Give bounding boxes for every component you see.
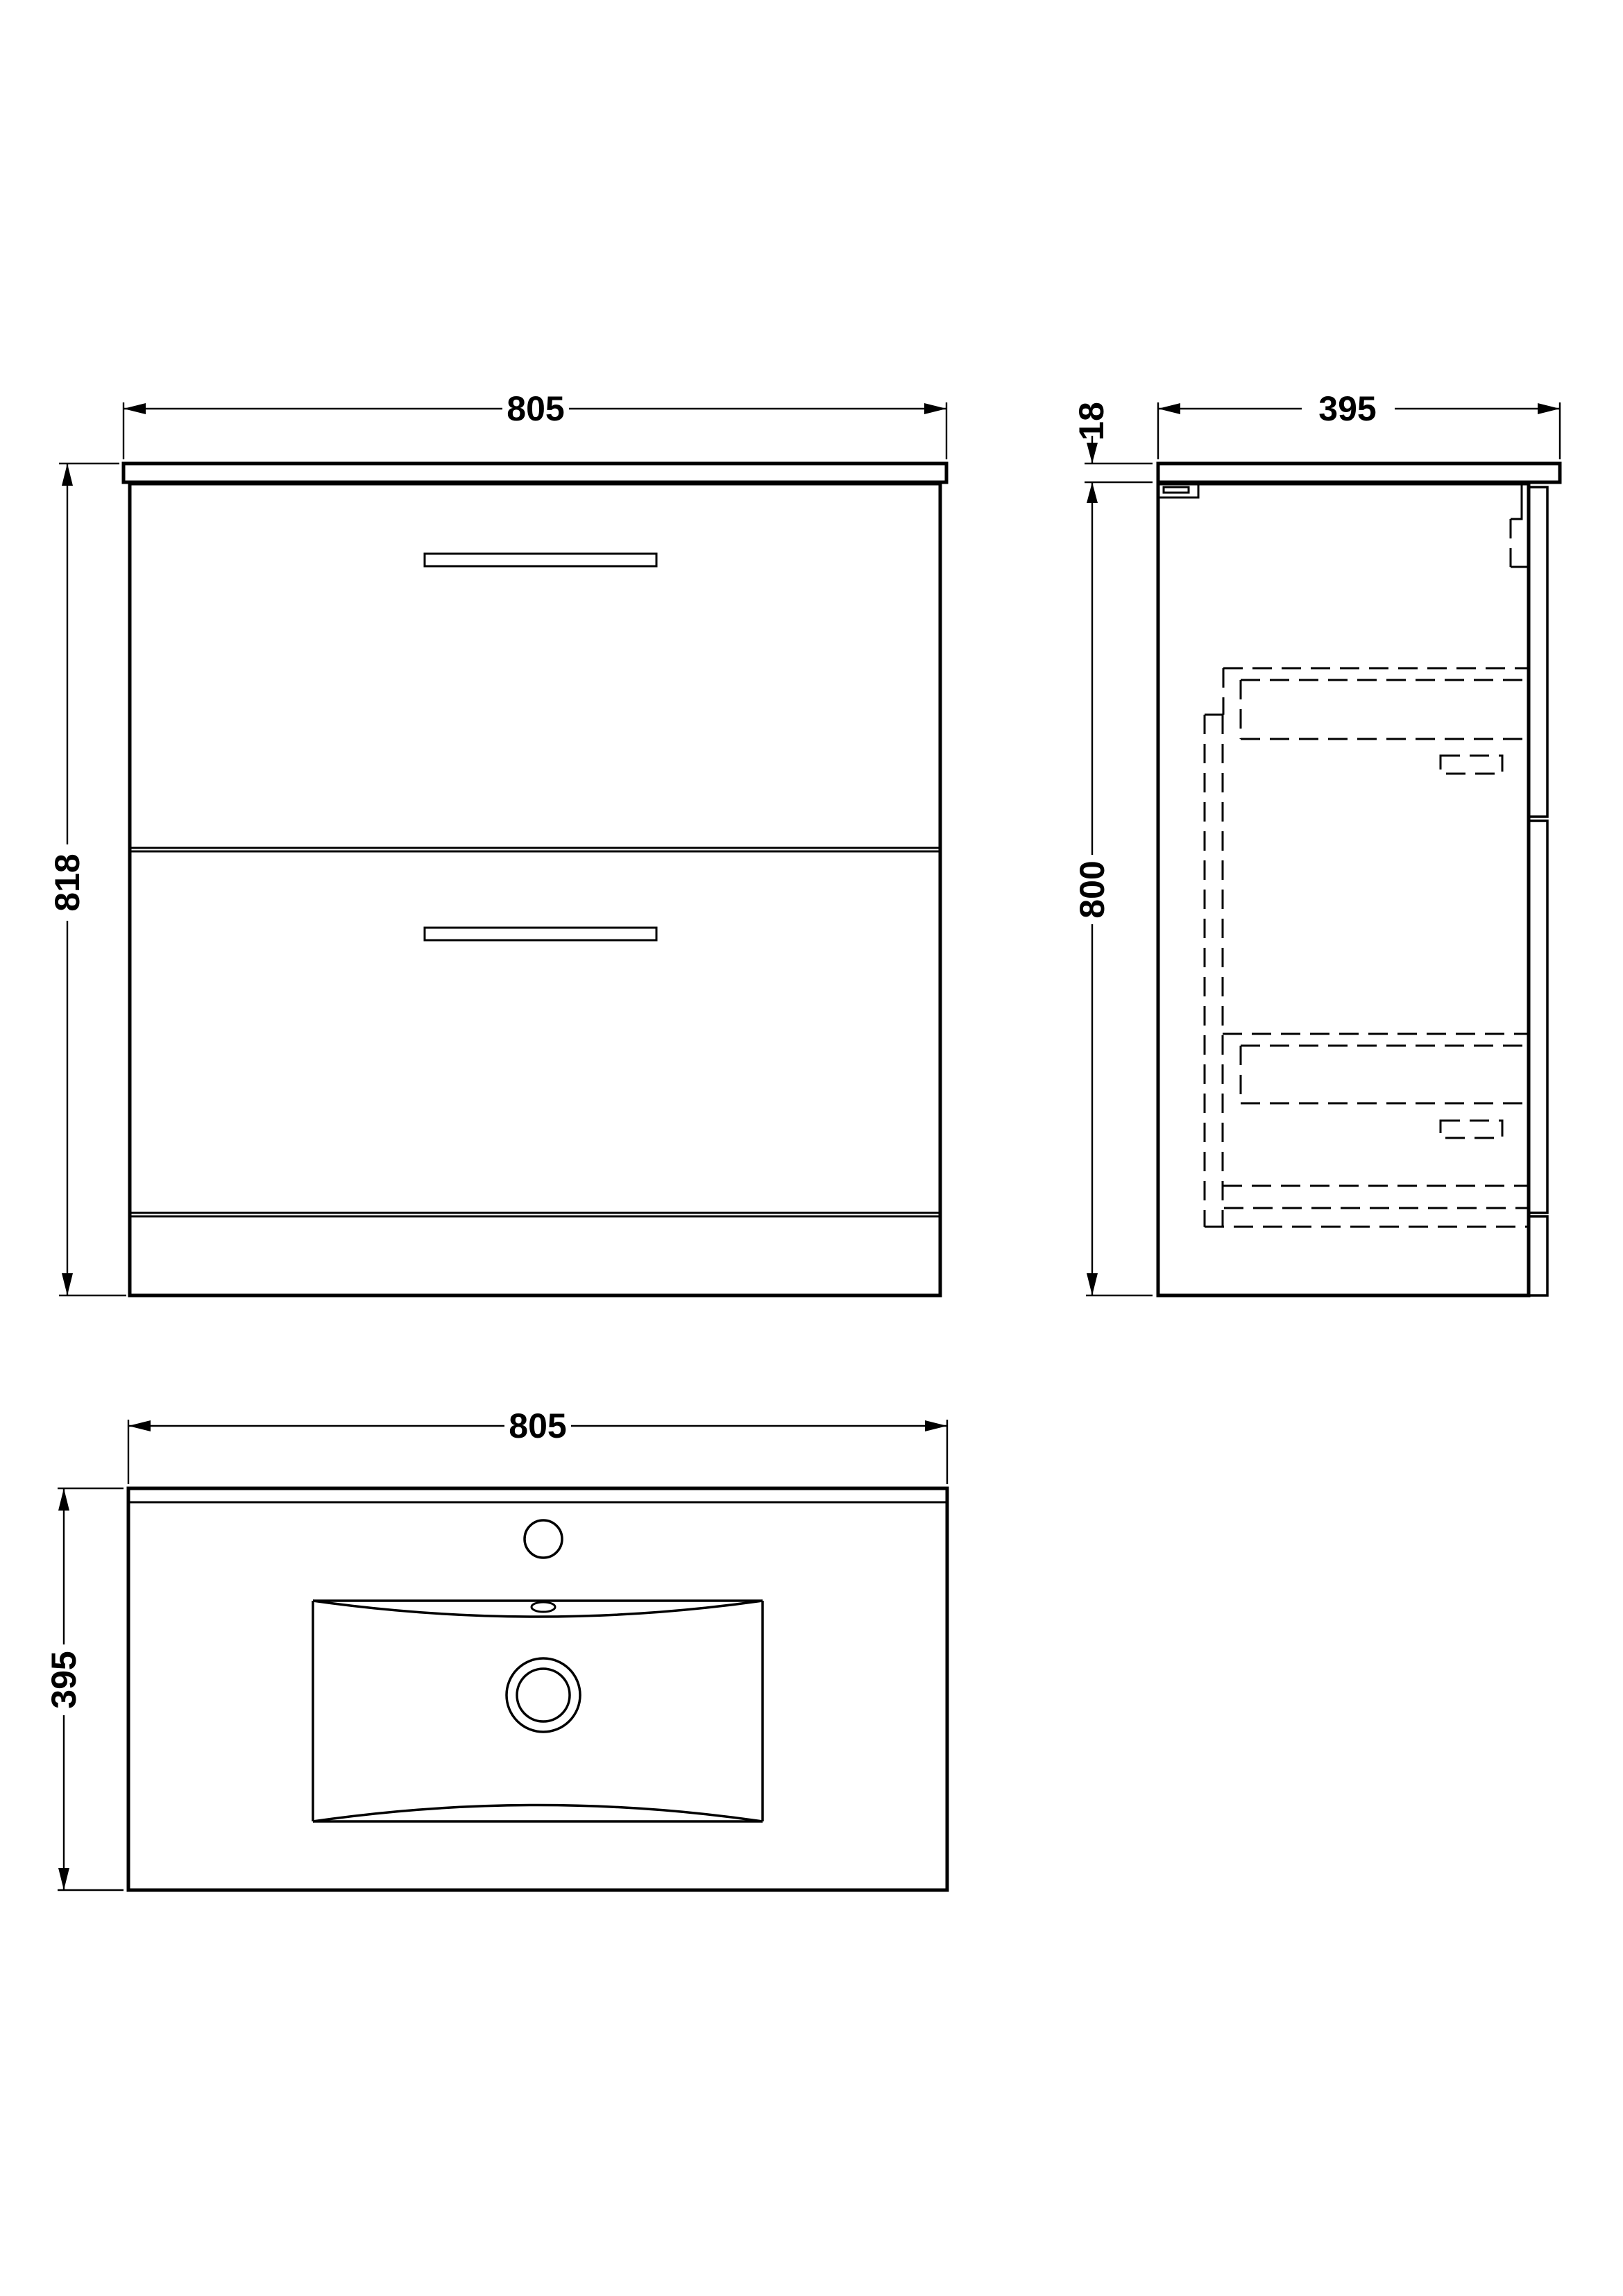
side-hidden-drawer1-runner — [1441, 756, 1502, 774]
basin-overflow-hole — [532, 1602, 555, 1612]
side-cabinet-body — [1158, 484, 1529, 1295]
arrowhead-icon — [62, 464, 73, 486]
dim-front-width-label: 805 — [507, 389, 564, 428]
front-drawer1-handle — [425, 554, 656, 566]
basin-waste-inner — [517, 1669, 570, 1721]
arrowhead-icon — [924, 403, 946, 414]
vanity-technical-drawing: 805 818 — [0, 0, 1623, 2296]
plan-basin-bowl — [313, 1601, 763, 1821]
arrowhead-icon — [128, 1420, 151, 1431]
side-drawer2-front-edge — [1529, 821, 1547, 1213]
plan-tap-hole — [525, 1520, 562, 1558]
side-hidden-drawer2-box — [1223, 1034, 1529, 1138]
dim-front-height: 818 — [48, 464, 126, 1295]
side-hidden-drawer2-runner — [1441, 1121, 1502, 1138]
dim-plan-width: 805 — [128, 1406, 947, 1484]
side-plinth-edge — [1529, 1216, 1547, 1295]
arrowhead-icon — [62, 1273, 73, 1295]
side-corner-notch — [1511, 485, 1522, 519]
side-worktop — [1158, 464, 1560, 482]
arrowhead-icon — [1087, 1273, 1098, 1295]
front-drawer2-handle — [425, 928, 656, 940]
drawing-sheet: 805 818 — [0, 0, 1623, 2296]
dim-front-width: 805 — [124, 389, 946, 459]
dim-side-depth: 395 — [1158, 389, 1560, 459]
dim-side-height-label: 800 — [1073, 860, 1112, 918]
basin-front-slope-curve — [313, 1805, 763, 1822]
plan-worktop-outline — [128, 1488, 947, 1890]
side-hidden-bottom-shelf — [1205, 1186, 1529, 1227]
arrowhead-icon — [1538, 403, 1560, 414]
dim-plan-depth-label: 395 — [44, 1651, 83, 1708]
side-fixing-bracket-slot — [1164, 487, 1189, 493]
arrowhead-icon — [1087, 443, 1098, 464]
front-cabinet-body — [130, 484, 940, 1295]
side-view: 395 18 800 — [1072, 389, 1560, 1295]
front-view: 805 818 — [48, 389, 946, 1295]
front-worktop — [124, 464, 946, 482]
arrowhead-icon — [925, 1420, 947, 1431]
dim-side-worktop-thickness: 18 — [1072, 402, 1153, 503]
dim-plan-width-label: 805 — [509, 1406, 566, 1445]
arrowhead-icon — [58, 1868, 69, 1890]
side-hidden-rear-rail — [1205, 715, 1223, 1227]
arrowhead-icon — [1158, 403, 1180, 414]
side-drawer1-front-edge — [1529, 487, 1547, 817]
plan-view: 805 395 — [44, 1406, 947, 1890]
dim-plan-depth: 395 — [44, 1488, 124, 1890]
arrowhead-icon — [124, 403, 146, 414]
dim-side-worktop-thickness-label: 18 — [1072, 402, 1111, 441]
dim-side-depth-label: 395 — [1318, 389, 1376, 428]
dim-side-height: 800 — [1073, 482, 1153, 1295]
arrowhead-icon — [58, 1488, 69, 1511]
dim-front-height-label: 818 — [48, 853, 87, 911]
side-hidden-drawer1-box — [1223, 668, 1529, 774]
